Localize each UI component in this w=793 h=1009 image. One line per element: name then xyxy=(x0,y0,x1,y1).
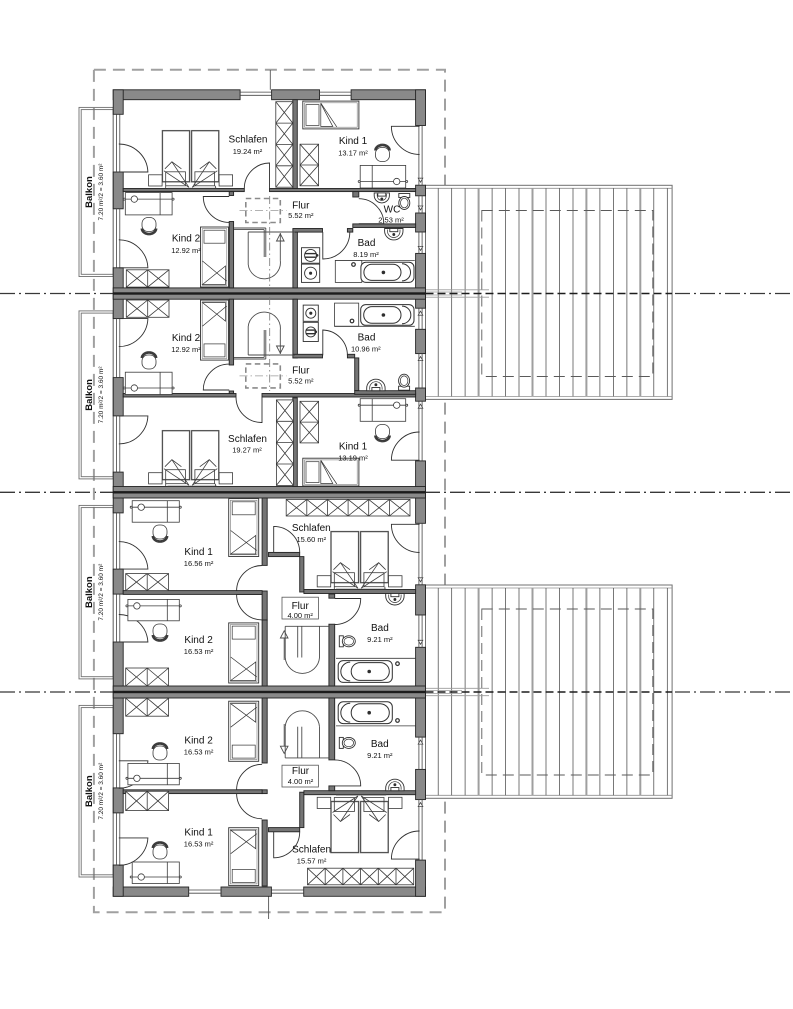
svg-text:5.52 m²: 5.52 m² xyxy=(288,211,314,220)
svg-text:Bad: Bad xyxy=(371,739,389,750)
svg-text:7.20 m²/2 = 3.60 m²: 7.20 m²/2 = 3.60 m² xyxy=(98,163,105,221)
svg-text:Kind 1: Kind 1 xyxy=(184,828,213,839)
svg-text:Balkon: Balkon xyxy=(84,576,95,608)
svg-text:Schlafen: Schlafen xyxy=(229,135,268,146)
svg-text:Kind 2: Kind 2 xyxy=(184,736,213,747)
svg-text:Kind 2: Kind 2 xyxy=(172,234,201,245)
svg-text:9.21 m²: 9.21 m² xyxy=(367,635,393,644)
svg-text:8.19 m²: 8.19 m² xyxy=(353,250,379,259)
svg-text:16.53 m²: 16.53 m² xyxy=(184,647,214,656)
svg-text:15.60 m²: 15.60 m² xyxy=(296,535,326,544)
svg-text:19.24 m²: 19.24 m² xyxy=(233,147,263,156)
svg-text:Balkon: Balkon xyxy=(84,176,95,208)
svg-text:WC: WC xyxy=(384,204,401,215)
svg-text:Balkon: Balkon xyxy=(84,775,95,807)
svg-text:Kind 1: Kind 1 xyxy=(184,547,213,558)
svg-text:7.20 m²/2 = 3.60 m²: 7.20 m²/2 = 3.60 m² xyxy=(98,366,105,424)
svg-text:Kind 1: Kind 1 xyxy=(339,442,368,453)
svg-text:5.52 m²: 5.52 m² xyxy=(288,377,314,386)
svg-text:10.96 m²: 10.96 m² xyxy=(351,344,381,353)
svg-text:12.92 m²: 12.92 m² xyxy=(171,246,201,255)
svg-text:Kind 2: Kind 2 xyxy=(172,333,201,344)
svg-text:Flur: Flur xyxy=(292,766,310,777)
svg-text:Flur: Flur xyxy=(292,200,310,211)
svg-text:Schlafen: Schlafen xyxy=(292,523,331,534)
svg-text:15.57 m²: 15.57 m² xyxy=(297,856,327,865)
svg-text:4.00 m²: 4.00 m² xyxy=(288,777,314,786)
svg-text:Schlafen: Schlafen xyxy=(292,845,331,856)
svg-text:Schlafen: Schlafen xyxy=(228,434,267,445)
svg-text:16.53 m²: 16.53 m² xyxy=(184,840,214,849)
svg-text:16.56 m²: 16.56 m² xyxy=(184,559,214,568)
svg-text:Bad: Bad xyxy=(371,623,389,634)
svg-text:19.27 m²: 19.27 m² xyxy=(232,445,262,454)
svg-text:13.17 m²: 13.17 m² xyxy=(338,148,368,157)
svg-text:Flur: Flur xyxy=(292,366,310,377)
svg-text:16.53 m²: 16.53 m² xyxy=(184,748,214,757)
svg-text:13.19 m²: 13.19 m² xyxy=(338,454,368,463)
svg-text:9.21 m²: 9.21 m² xyxy=(367,751,393,760)
svg-text:7.20 m²/2 = 3.60 m²: 7.20 m²/2 = 3.60 m² xyxy=(98,563,105,621)
svg-text:7.20 m²/2 = 3.60 m²: 7.20 m²/2 = 3.60 m² xyxy=(98,762,105,820)
svg-text:Kind 1: Kind 1 xyxy=(339,136,368,147)
svg-text:Bad: Bad xyxy=(358,333,376,344)
svg-text:4.00 m²: 4.00 m² xyxy=(287,611,313,620)
svg-text:Bad: Bad xyxy=(358,238,376,249)
svg-text:2.53 m²: 2.53 m² xyxy=(378,215,404,224)
svg-text:12.92 m²: 12.92 m² xyxy=(171,345,201,354)
svg-text:Kind 2: Kind 2 xyxy=(184,635,213,646)
svg-text:Balkon: Balkon xyxy=(84,379,95,411)
